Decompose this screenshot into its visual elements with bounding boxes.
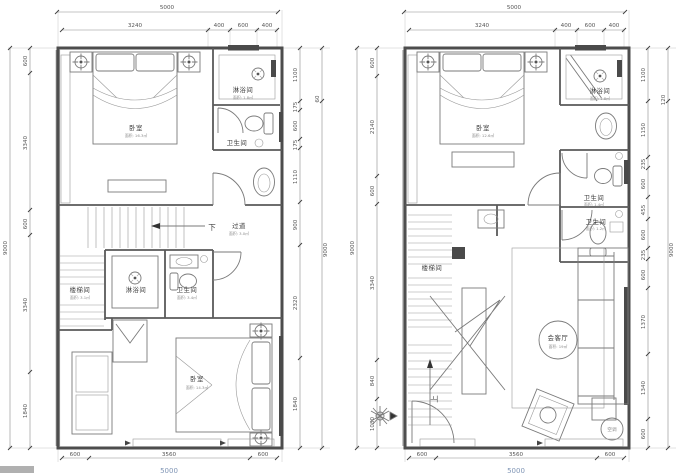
dim-right-seg: 1150 bbox=[641, 122, 647, 137]
sink-counter bbox=[478, 210, 504, 228]
room-area: 面积: 1.2㎡ bbox=[586, 226, 606, 231]
down-arrowhead bbox=[151, 223, 160, 229]
window-sill-hatch bbox=[133, 439, 221, 447]
right-plan: 5000 3240 400 600 400 9000 600 2140 600 … bbox=[350, 5, 676, 473]
dim-left-seg: 600 bbox=[370, 185, 376, 196]
dim-right-seg: 235 bbox=[641, 249, 647, 260]
down-arrow-label: 下 bbox=[208, 223, 216, 232]
dim-right-seg: 600 bbox=[641, 178, 647, 189]
sink-counter bbox=[170, 255, 198, 268]
dim-right-seg: 2320 bbox=[293, 295, 299, 310]
sofa bbox=[578, 248, 628, 404]
room-area: 面积: 1.4㎡ bbox=[584, 202, 604, 207]
room-label-toilet-lower: 卫生间 bbox=[586, 217, 607, 226]
dim-left-total: 9000 bbox=[350, 240, 356, 255]
room-area: 面积: 3.4㎡ bbox=[177, 295, 197, 300]
left-plan-doors bbox=[213, 108, 245, 280]
dim-right-seg: 175 bbox=[293, 139, 299, 150]
dim-top-seg: 400 bbox=[214, 23, 225, 29]
ac-label: 空调 bbox=[607, 426, 617, 433]
room-label-corridor: 过道 bbox=[232, 221, 246, 230]
dim-bottom-seg: 600 bbox=[605, 452, 616, 458]
stair-cross-lines bbox=[430, 296, 505, 390]
dim-left-seg: 3340 bbox=[370, 275, 376, 290]
radiator bbox=[108, 180, 166, 192]
dim-right-seg: 1110 bbox=[293, 169, 299, 184]
bench bbox=[452, 152, 514, 167]
dim-right-seg: 175 bbox=[293, 101, 299, 112]
dim-top-seg: 3240 bbox=[128, 23, 143, 29]
right-plan-walls bbox=[403, 45, 630, 448]
dim-bottom-seg: 3560 bbox=[509, 452, 524, 458]
dim-top-seg: 600 bbox=[238, 23, 249, 29]
dim-right-seg: 235 bbox=[641, 158, 647, 169]
dim-top-seg: 600 bbox=[585, 23, 596, 29]
dim-right-seg: 455 bbox=[641, 204, 647, 215]
right-plan-furniture bbox=[371, 52, 628, 447]
window-sill-hatch bbox=[420, 439, 475, 447]
room-area: 面积: 14.3㎡ bbox=[186, 385, 209, 390]
dim-right-outer-seg: 120 bbox=[661, 94, 667, 105]
room-area: 面积: 16.3㎡ bbox=[125, 133, 148, 138]
room-area: 面积: 12.6㎡ bbox=[472, 133, 495, 138]
dim-left-seg: 600 bbox=[23, 218, 29, 229]
marker-arrow bbox=[125, 441, 131, 446]
shower-tray bbox=[112, 256, 158, 308]
room-label-shower-top: 淋浴间 bbox=[233, 85, 254, 94]
door-arc-toilet-top bbox=[218, 108, 243, 133]
dim-left-total: 9000 bbox=[3, 240, 9, 255]
up-arrowhead bbox=[427, 359, 433, 368]
cabinet bbox=[72, 352, 112, 434]
dim-left-seg: 1080 bbox=[370, 416, 376, 431]
dim-left-seg: 1840 bbox=[23, 403, 29, 418]
dim-right-seg: 1370 bbox=[641, 314, 647, 329]
marker-arrow bbox=[220, 441, 226, 446]
room-area: 面积: 1.8㎡ bbox=[233, 95, 253, 100]
floor-drain-icon bbox=[255, 139, 263, 147]
dim-bottom-seg: 600 bbox=[258, 452, 269, 458]
washbasin bbox=[596, 113, 617, 139]
window-sill-hatch bbox=[228, 439, 274, 447]
dim-top-seg: 400 bbox=[609, 23, 620, 29]
dim-top-total: 5000 bbox=[160, 5, 175, 11]
dim-top-total: 5000 bbox=[507, 5, 522, 11]
dim-right-seg: 1100 bbox=[293, 67, 299, 82]
dim-right-total: 9000 bbox=[669, 242, 675, 257]
stair-chevron bbox=[116, 324, 144, 343]
stair-landing-marker bbox=[452, 247, 465, 259]
left-plan: 5000 3240 400 600 400 9000 600 3340 600 … bbox=[3, 5, 330, 473]
dim-left-seg: 3340 bbox=[23, 297, 29, 312]
window-bar bbox=[575, 45, 606, 51]
right-plan-room-labels: 卧室 面积: 12.6㎡ 淋浴间 面积: 1.8㎡ 卫生间 面积: 1.4㎡ 卫… bbox=[422, 86, 617, 433]
room-label-stair-room: 楼梯间 bbox=[70, 285, 91, 294]
room-label-stair-room: 楼梯间 bbox=[422, 263, 443, 272]
dim-bottom-seg: 600 bbox=[70, 452, 81, 458]
up-arrow-label: 上 bbox=[430, 395, 439, 403]
dim-right-seg: 900 bbox=[293, 219, 299, 230]
window-bar bbox=[228, 45, 259, 51]
floor-drain-icon bbox=[616, 211, 623, 218]
dim-right-seg: 1100 bbox=[641, 67, 647, 82]
screen-edge-artifact bbox=[0, 466, 34, 473]
dim-right-seg: 600 bbox=[293, 120, 299, 131]
dim-top-seg: 400 bbox=[561, 23, 572, 29]
room-area: 面积: 3.0㎡ bbox=[229, 231, 249, 236]
room-label-bedroom-top: 卧室 bbox=[129, 123, 143, 132]
dim-left-seg: 840 bbox=[370, 375, 376, 386]
dim-left-seg: 2140 bbox=[370, 119, 376, 134]
entry-door-arc bbox=[412, 401, 454, 443]
dim-right-seg: 600 bbox=[641, 229, 647, 240]
left-plan-walls bbox=[56, 45, 284, 448]
room-label-toilet-mid: 卫生间 bbox=[177, 285, 198, 294]
floor-drain-icon bbox=[201, 256, 208, 263]
dim-right-seg: 1840 bbox=[293, 396, 299, 411]
sink-counter bbox=[610, 222, 623, 232]
dim-top-seg: 3240 bbox=[475, 23, 490, 29]
toilet bbox=[595, 166, 623, 186]
dim-bottom-total-clipped: 5000 bbox=[507, 467, 525, 473]
dim-right-total: 9000 bbox=[323, 242, 329, 257]
armchair bbox=[522, 389, 574, 441]
door-arc-basin-nook bbox=[213, 173, 245, 205]
washbasin bbox=[254, 168, 275, 196]
toilet bbox=[245, 113, 273, 134]
wardrobe bbox=[61, 55, 70, 203]
marker-arrow bbox=[537, 441, 543, 446]
room-area: 面积: 1.8㎡ bbox=[590, 96, 610, 101]
door-arc-toilet-upper bbox=[562, 153, 587, 178]
left-plan-room-labels: 卧室 面积: 16.3㎡ 淋浴间 面积: 1.8㎡ 卫生间 下 过道 面积: 3… bbox=[70, 85, 254, 390]
dim-bottom-seg: 600 bbox=[417, 452, 428, 458]
room-label-bedroom-bottom: 卧室 bbox=[190, 374, 204, 383]
dim-right-seg: 1340 bbox=[641, 380, 647, 395]
room-area: 面积: 3.1㎡ bbox=[70, 295, 90, 300]
dim-bottom-seg: 3560 bbox=[162, 452, 177, 458]
floor-drain-icon bbox=[616, 153, 623, 160]
room-label-living: 会客厅 bbox=[548, 333, 569, 342]
room-label-shower-mid: 淋浴间 bbox=[126, 285, 147, 294]
dim-right-seg: 600 bbox=[641, 428, 647, 439]
room-label-toilet-top: 卫生间 bbox=[227, 138, 248, 147]
dim-left-seg: 600 bbox=[23, 55, 29, 66]
dim-bottom-total-clipped: 5000 bbox=[160, 467, 178, 473]
dim-top-seg: 400 bbox=[262, 23, 273, 29]
room-label-toilet-upper: 卫生间 bbox=[584, 193, 605, 202]
door-arc-mid-band bbox=[213, 252, 241, 280]
floor-plan-canvas: 5000 3240 400 600 400 9000 600 3340 600 … bbox=[0, 0, 694, 473]
door-arc-bedroom bbox=[528, 173, 560, 205]
stair-treads bbox=[88, 207, 184, 248]
left-wall-hatch bbox=[56, 50, 61, 446]
dim-left-seg: 600 bbox=[370, 57, 376, 68]
wardrobe bbox=[408, 55, 417, 203]
dim-right-seg: 600 bbox=[641, 269, 647, 280]
dim-right-outer-seg: 60 bbox=[315, 95, 321, 103]
left-wall-hatch bbox=[403, 50, 408, 446]
room-label-shower: 淋浴间 bbox=[590, 86, 611, 95]
room-area: 面积: 19㎡ bbox=[549, 344, 568, 349]
dim-left-seg: 3340 bbox=[23, 135, 29, 150]
room-label-bedroom: 卧室 bbox=[476, 123, 490, 132]
floor-plan-screenshot: 5000 3240 400 600 400 9000 600 3340 600 … bbox=[0, 0, 694, 473]
rug bbox=[512, 248, 604, 408]
